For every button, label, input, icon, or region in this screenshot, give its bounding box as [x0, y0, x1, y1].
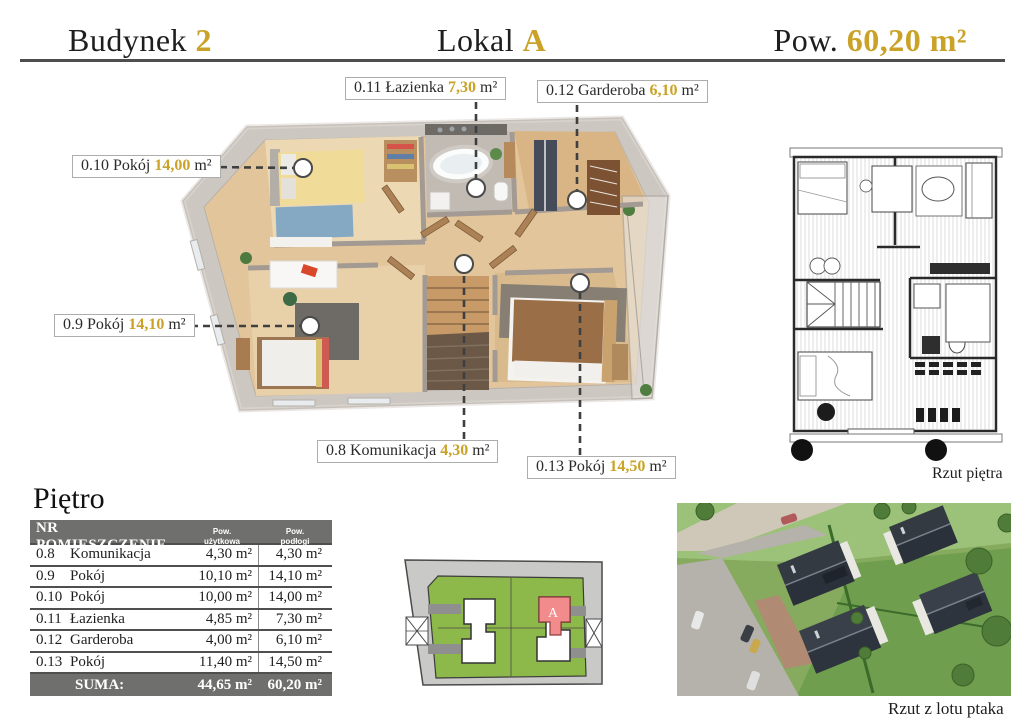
- flyer-page: Budynek 2 Lokal A Pow. 60,20 m²: [0, 0, 1024, 724]
- balcony-plant-2: [640, 384, 652, 396]
- col-header-floor: Pow.podłogi: [258, 527, 332, 546]
- plan2d-sink: [922, 336, 940, 354]
- table-row: 0.11Łazienka4,85 m²7,30 m²: [30, 608, 332, 630]
- building-label: Budynek: [68, 22, 187, 58]
- header-divider: [20, 59, 1005, 62]
- table-sum-row: SUMA: 44,65 m² 60,20 m²: [30, 672, 332, 696]
- rug-blue: [275, 205, 353, 240]
- plan2d-plant: [817, 403, 835, 421]
- plan2d-shower: [914, 284, 940, 308]
- building-title: Budynek 2: [68, 22, 212, 59]
- tag-pokoj-09: 0.9 Pokój 14,10 m²: [54, 314, 195, 337]
- caption-floor-plan-2d: Rzut piętra: [932, 465, 1003, 483]
- bed-09-accent-yellow: [316, 339, 322, 387]
- aerial-photo: [677, 503, 1011, 696]
- plant-09: [240, 252, 252, 264]
- table-row: 0.10Pokój10,00 m²14,00 m²: [30, 586, 332, 608]
- bed-013-sheet: [514, 360, 603, 380]
- unit-label: Lokal: [437, 22, 514, 58]
- chair-green: [283, 292, 297, 306]
- tag-pokoj-010: 0.10 Pokój 14,00 m²: [72, 155, 221, 178]
- area-value: 60,20 m²: [847, 22, 967, 58]
- table-row: 0.13Pokój11,40 m²14,50 m²: [30, 651, 332, 673]
- sum-label: SUMA:: [30, 677, 186, 694]
- plan2d-sideboard: [930, 263, 990, 274]
- unit-letter: A: [523, 22, 547, 58]
- window: [348, 398, 390, 404]
- shelf-white: [270, 237, 332, 247]
- building-number: 2: [196, 22, 213, 58]
- plan2d-shrub: [791, 439, 813, 461]
- unit-a-letter: A: [548, 606, 559, 621]
- sum-floor: 60,20 m²: [258, 677, 332, 694]
- caption-aerial-view: Rzut z lotu ptaka: [888, 699, 1004, 719]
- plan2d-desk: [872, 166, 912, 212]
- area-label: Pow.: [773, 22, 838, 58]
- bench-013: [612, 344, 628, 380]
- bathroom-sink: [430, 192, 450, 210]
- toilet: [494, 182, 508, 201]
- side-table: [236, 338, 250, 370]
- table-header-row: NR POMIESZCZENIE Pow.użytkowa Pow.podłog…: [30, 520, 332, 543]
- tag-pokoj-013: 0.13 Pokój 14,50 m²: [527, 456, 676, 479]
- plan2d-playmat: [916, 166, 962, 216]
- unit-title: Lokal A: [437, 22, 546, 59]
- pillow: [281, 178, 296, 199]
- bathroom-cabinet: [504, 142, 515, 178]
- site-green-area: [428, 576, 586, 678]
- area-title: Pow. 60,20 m²: [773, 22, 967, 59]
- table-row: 0.8Komunikacja4,30 m²4,30 m²: [30, 543, 332, 565]
- tag-komunikacja: 0.8 Komunikacja 4,30 m²: [317, 440, 498, 463]
- bed-013-blanket: [512, 299, 604, 364]
- floorplan-3d: [178, 110, 698, 435]
- floorplan-2d: [788, 146, 1004, 464]
- pillow: [281, 154, 296, 175]
- window: [273, 400, 315, 406]
- bathroom-plant: [490, 148, 502, 160]
- bed-09-accent-red: [322, 338, 329, 388]
- hatch-box-left: [406, 617, 428, 645]
- site-plan: A: [398, 557, 604, 689]
- area-table: NR POMIESZCZENIE Pow.użytkowa Pow.podłog…: [30, 520, 332, 696]
- sum-useful: 44,65 m²: [186, 677, 258, 694]
- hatch-box-right: [586, 619, 602, 647]
- tag-garderoba: 0.12 Garderoba 6,10 m²: [537, 80, 708, 103]
- plan2d-sofa: [966, 163, 992, 218]
- table-row: 0.9Pokój10,10 m²14,10 m²: [30, 565, 332, 587]
- plan2d-shrub-2: [925, 439, 947, 461]
- table-row: 0.12Garderoba4,00 m²6,10 m²: [30, 629, 332, 651]
- col-header-useful: Pow.użytkowa: [186, 527, 258, 546]
- floor-title: Piętro: [33, 482, 105, 516]
- tag-lazienka: 0.11 Łazienka 7,30 m²: [345, 77, 506, 100]
- bed-09-duvet: [262, 340, 319, 386]
